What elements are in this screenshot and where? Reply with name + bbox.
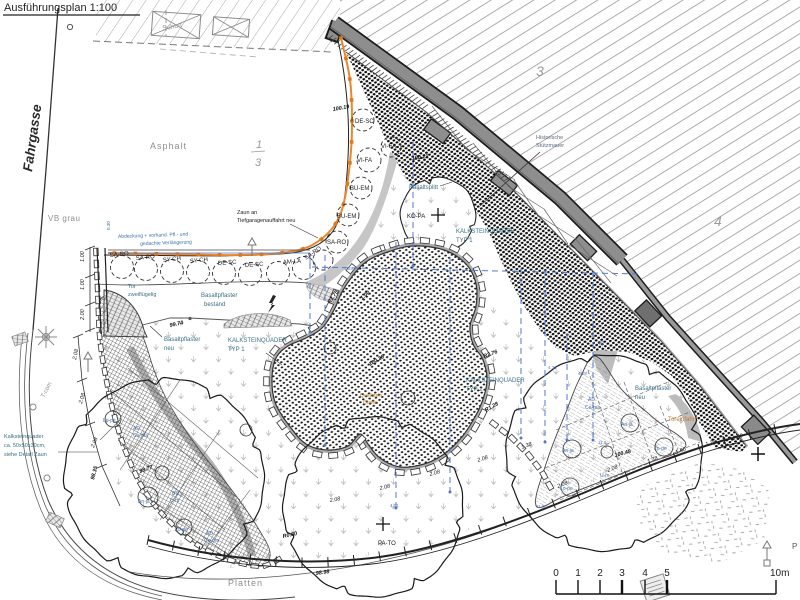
svg-text:neu: neu [635,395,645,401]
svg-text:Ce-ma: Ce-ma [204,538,219,544]
svg-text:AM-LA: AM-LA [283,259,302,266]
svg-text:0.30: 0.30 [106,221,111,230]
svg-text:TYP 1: TYP 1 [456,238,473,244]
svg-text:VB grau: VB grau [48,214,80,223]
svg-text:VI-FA: VI-FA [381,144,396,150]
svg-text:An-ja: An-ja [562,448,574,454]
svg-text:0: 0 [553,568,559,579]
svg-text:Basaltsplitt: Basaltsplitt [409,185,438,191]
svg-text:3: 3 [536,63,544,79]
svg-text:Stützmauer: Stützmauer [536,143,564,149]
svg-text:BU-EM: BU-EM [337,214,356,220]
svg-text:PA-TO: PA-TO [378,541,396,547]
svg-text:1: 1 [575,568,581,579]
svg-text:Quellstein: Quellstein [360,393,382,399]
svg-text:Asphalt: Asphalt [150,141,187,151]
svg-text:Basaltpflaster: Basaltpflaster [201,293,237,299]
svg-text:1: 1 [256,139,262,151]
svg-text:KO-PA: KO-PA [407,214,425,220]
svg-text:TYP 1: TYP 1 [228,347,245,353]
svg-text:4: 4 [642,568,648,579]
svg-text:11.08: 11.08 [536,504,547,509]
svg-text:Lo-pe: Lo-pe [654,446,667,452]
svg-text:4: 4 [714,213,722,229]
svg-text:Tor: Tor [128,284,136,290]
svg-text:Kalksteinquader: Kalksteinquader [4,434,44,440]
svg-text:5: 5 [664,568,670,579]
svg-text:KALKSTEINQUADER: KALKSTEINQUADER [466,378,525,384]
svg-text:2.00: 2.00 [80,308,86,321]
svg-text:P: P [792,542,797,551]
svg-text:zweiflügelig: zweiflügelig [128,292,156,298]
svg-text:4.01: 4.01 [390,503,399,508]
svg-text:1.23: 1.23 [344,266,353,271]
svg-text:VI-FA: VI-FA [357,158,372,164]
svg-text:Basaltpflaster: Basaltpflaster [635,386,671,392]
svg-text:SA-RO: SA-RO [327,240,346,246]
svg-text:1.00: 1.00 [80,278,86,290]
svg-text:TYP 2: TYP 2 [466,387,483,393]
svg-text:neu: neu [164,346,174,352]
svg-text:Ce-ma: Ce-ma [133,433,148,439]
svg-text:BS: BS [172,491,179,497]
svg-text:Ce-ma: Ce-ma [585,405,600,411]
svg-text:11.0: 11.0 [598,440,607,445]
svg-text:Zaun an: Zaun an [237,210,257,216]
svg-text:10m: 10m [770,568,789,579]
svg-text:Ausführungsplan 1:100: Ausführungsplan 1:100 [4,2,117,14]
svg-text:Toreinfahrt: Toreinfahrt [668,417,697,423]
svg-text:2: 2 [597,568,603,579]
svg-text:Tiefgaragenauffahrt neu: Tiefgaragenauffahrt neu [237,218,295,224]
svg-text:bestand: bestand [204,302,225,308]
svg-text:BU-EM: BU-EM [350,186,369,192]
svg-text:40: 40 [598,341,604,347]
svg-text:AD: AD [133,426,140,432]
svg-text:KALKSTEINQUADER: KALKSTEINQUADER [456,229,515,235]
svg-text:AD: AD [206,531,213,537]
svg-text:DE-SC: DE-SC [355,119,374,125]
svg-text:3: 3 [619,568,625,579]
svg-text:Platten: Platten [228,578,263,588]
svg-text:ca. 50x50x30cm,: ca. 50x50x30cm, [4,443,46,449]
svg-text:Basaltpflaster: Basaltpflaster [164,337,200,343]
svg-text:4.31: 4.31 [548,365,557,370]
svg-text:1.00: 1.00 [80,250,86,262]
svg-text:Lo-pe: Lo-pe [175,527,188,533]
svg-text:4.28: 4.28 [578,371,587,376]
svg-text:Lo-pe: Lo-pe [103,418,116,424]
svg-text:An-ja: An-ja [138,499,150,505]
svg-text:siehe Detail Zaun: siehe Detail Zaun [4,452,47,458]
svg-text:U-m: U-m [170,498,179,504]
svg-text:Historische: Historische [536,135,563,141]
svg-text:Quelle: Quelle [363,400,378,406]
svg-text:AD: AD [588,397,595,403]
svg-text:KALKSTEINQUADER: KALKSTEINQUADER [228,338,287,344]
svg-text:An-ja: An-ja [621,422,633,428]
svg-text:3: 3 [255,157,262,169]
